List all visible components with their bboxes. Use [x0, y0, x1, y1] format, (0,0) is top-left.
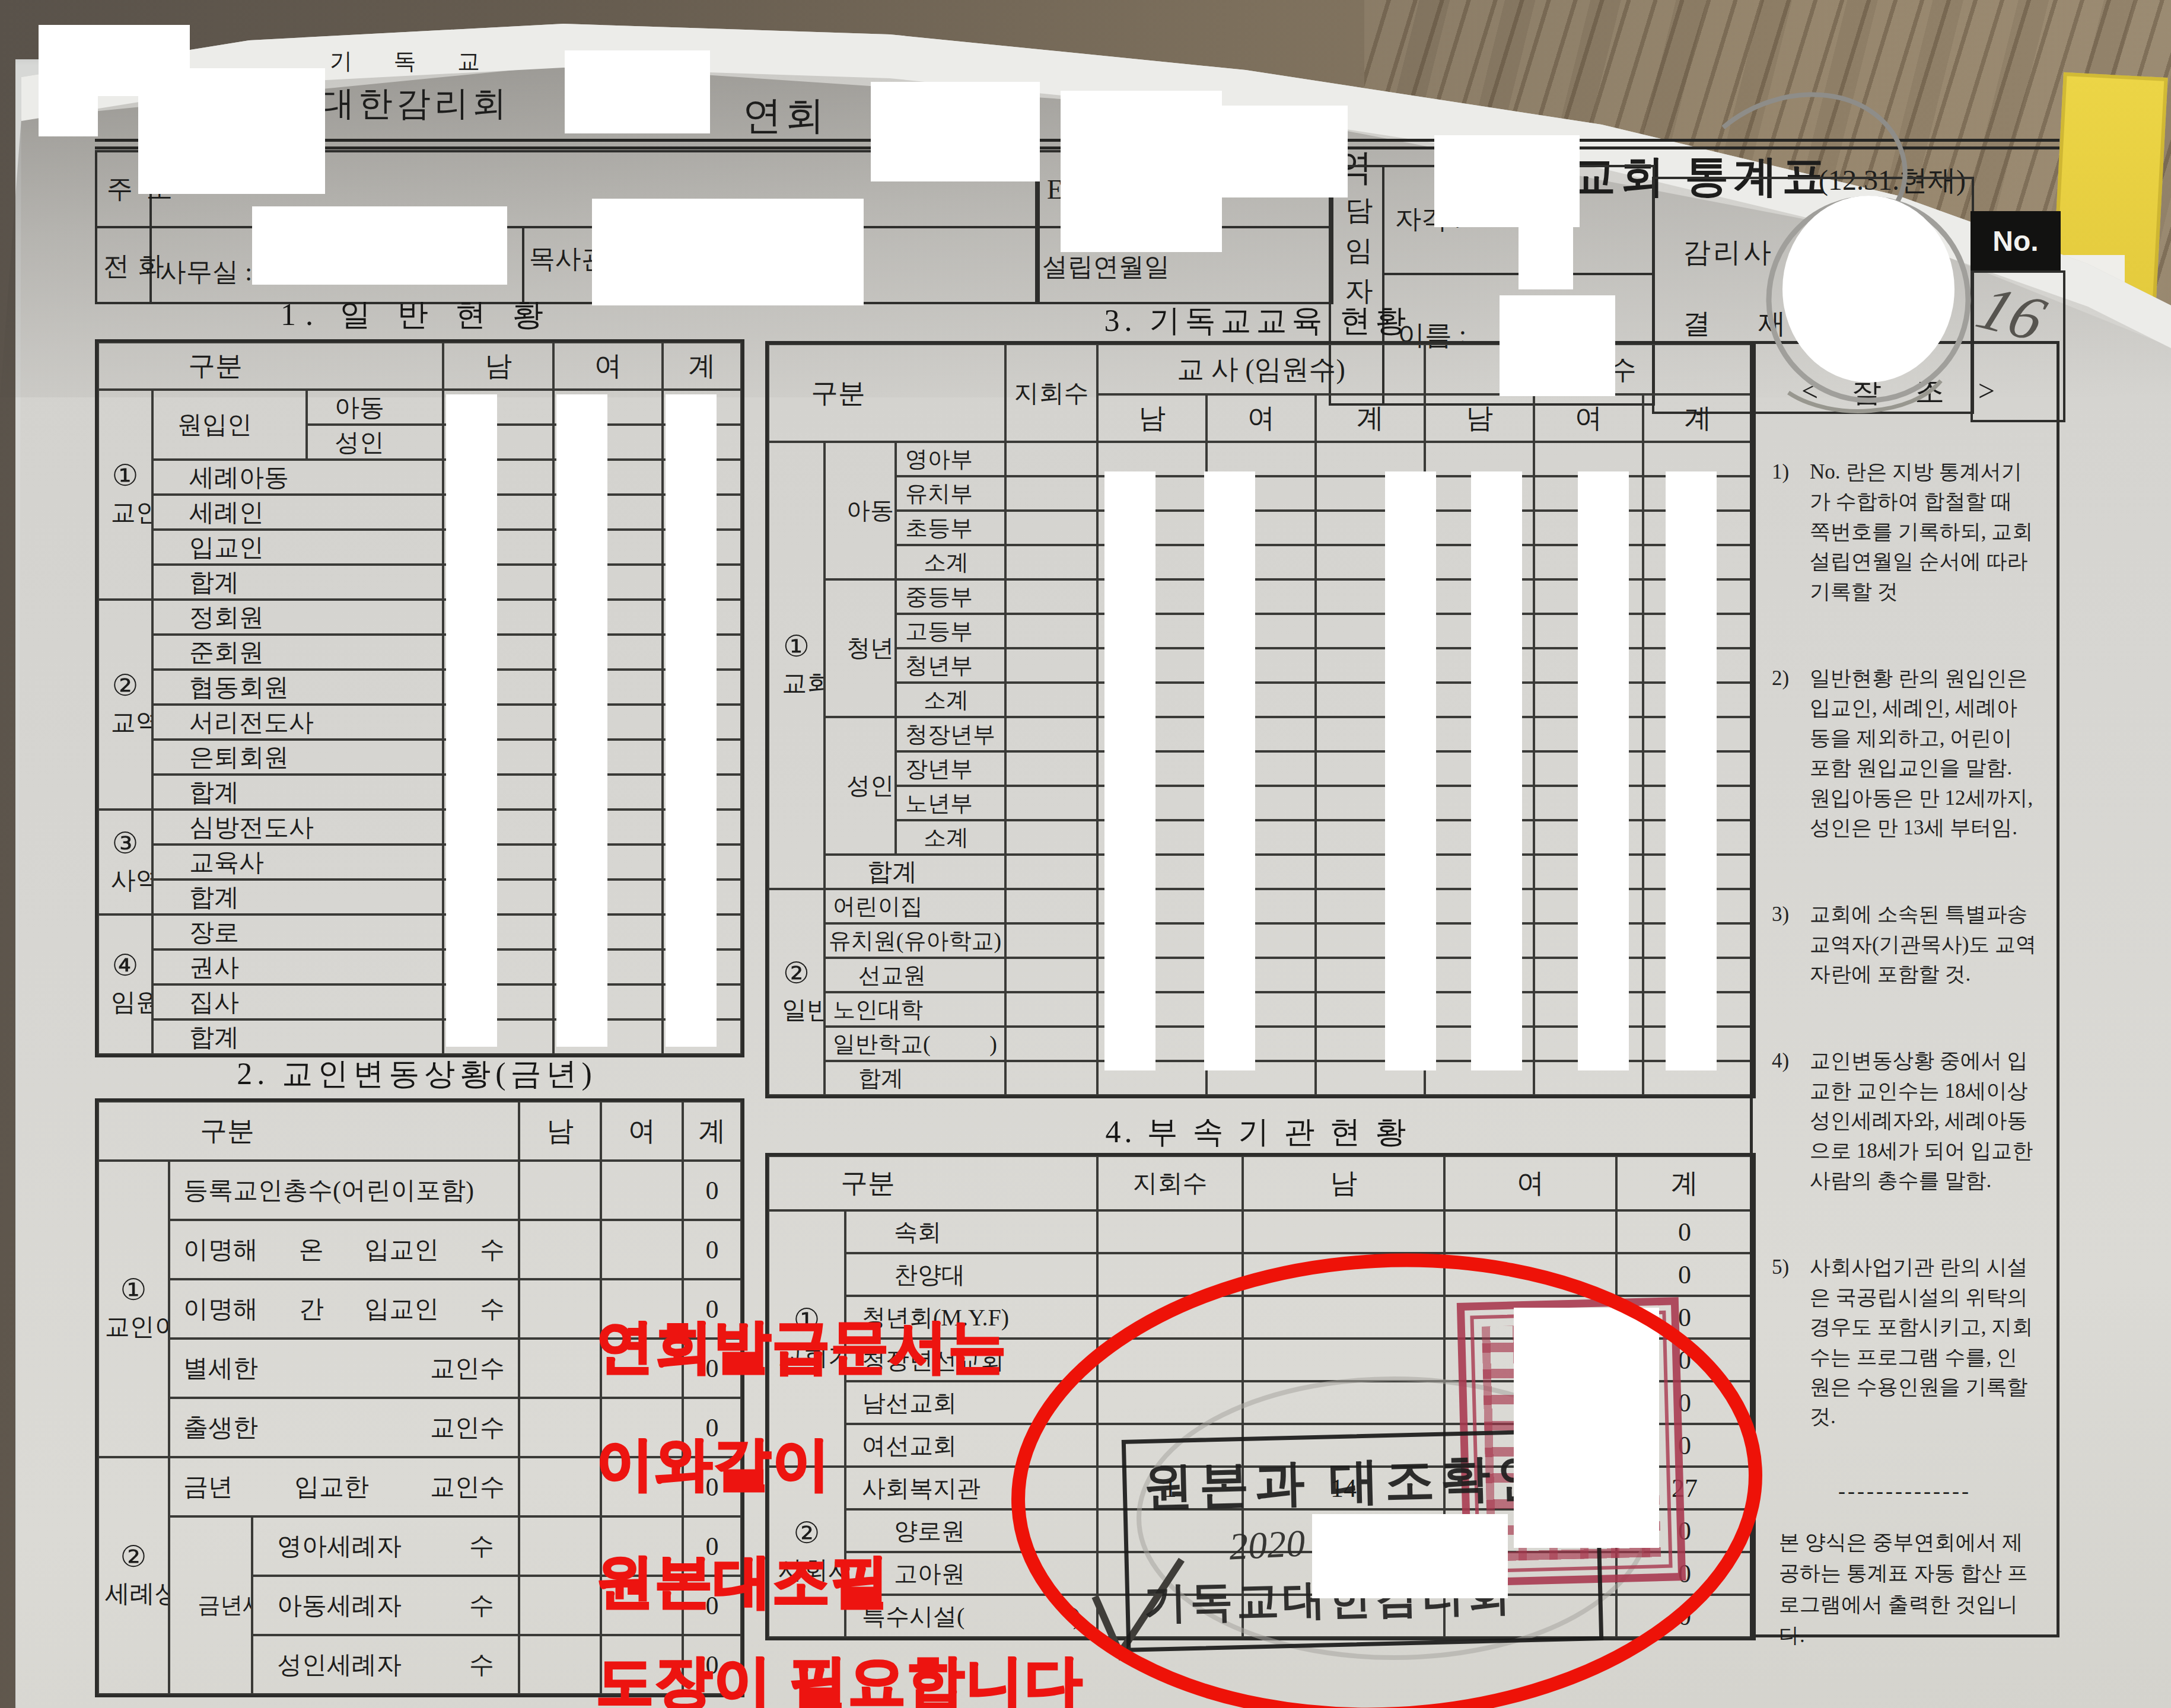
divider: [522, 226, 524, 302]
table-cell: [519, 1279, 601, 1339]
table-label-cell: 속회: [845, 1210, 1097, 1253]
group-number: ①: [783, 630, 810, 663]
red-note-line: 원본대조필: [596, 1543, 890, 1621]
table-label-cell: 일반학교( ): [825, 1027, 1005, 1061]
column-header: 구분: [768, 1156, 1097, 1210]
note-text: No. 란은 지방 통계서기가 수합하여 합철할 때 쪽번호를 기록하되, 교회…: [1810, 457, 2038, 607]
table-cell: 0: [683, 1220, 741, 1279]
office-phone-label: 사무실 :: [160, 254, 252, 289]
no-label-box: No.: [1971, 211, 2061, 270]
group-name: 교역자: [111, 706, 139, 740]
phone-label: 전 화: [103, 248, 165, 283]
redaction-box: [592, 199, 864, 305]
redaction-box: [1061, 91, 1222, 252]
table-label-cell: 이명해 온 입교인 수: [169, 1220, 519, 1279]
table-label: 노인대학: [826, 995, 1004, 1025]
note-number: 4): [1772, 1046, 1810, 1196]
group-name: 일반교육: [782, 993, 810, 1027]
table-label-cell: 출생한 교인수: [169, 1398, 519, 1457]
founded-date-label: 설립연월일: [1042, 250, 1170, 284]
table-label-cell: 청장년부: [896, 717, 1005, 751]
table-label: 유치원(유아학교): [825, 926, 1005, 956]
table-label: 입교인: [154, 531, 442, 564]
table-cell: [1005, 545, 1097, 579]
notes-divider: --------------: [1772, 1478, 2038, 1503]
table-cell: [1243, 1339, 1444, 1381]
table-label: 초등부: [897, 513, 1004, 543]
redaction-box: [565, 50, 710, 133]
table-label-cell: 초등부: [896, 511, 1005, 545]
group-name: 임원: [111, 986, 139, 1019]
table-label-cell: 원입인: [152, 390, 307, 460]
denomination-small-label: 기 독 교: [330, 46, 498, 77]
table-label: 장로: [154, 916, 442, 949]
table-cell: [1005, 442, 1097, 476]
column-header: 계: [663, 342, 741, 390]
table-label: 별세한 교인수: [170, 1352, 518, 1385]
table-label-cell: 합계: [152, 880, 443, 914]
group-name: 세례상황: [105, 1577, 163, 1611]
group-header-cell: ②세례상황: [98, 1457, 169, 1694]
group-header-cell: ①교인이동상황: [98, 1161, 169, 1457]
table-label-cell: 장로: [152, 914, 443, 949]
redaction-box: [871, 82, 1040, 181]
table-label: 선교원: [826, 960, 1004, 990]
column-header: 계: [1616, 1156, 1753, 1210]
subgroup-name: 아동부: [846, 495, 874, 527]
table-label: 이명해 온 입교인 수: [170, 1233, 518, 1266]
table-cell: [519, 1398, 601, 1457]
table-cell: [1005, 614, 1097, 648]
table-label-cell: 영아부: [896, 442, 1005, 476]
table-label: 구분: [99, 348, 442, 384]
table-label: 영아부: [897, 444, 1004, 474]
table-label: 구분: [99, 1113, 518, 1149]
redaction-box: [1471, 471, 1522, 1070]
photo-of-church-statistics-form: 년도 기 독 교 대한감리회 연회 지방 구역 교회 통계표 (12.31.현재…: [0, 0, 2171, 1708]
table-label: 합계: [154, 1021, 442, 1054]
table-label: 금년세례자: [198, 1590, 224, 1620]
redaction-box: [1519, 195, 1573, 289]
table-label: 협동회원: [154, 671, 442, 704]
table-label-cell: 노인대학: [825, 992, 1005, 1027]
table-cell: [1005, 717, 1097, 751]
table-cell: [1005, 855, 1097, 889]
table-label: 등록교인총수(어린이포함): [170, 1174, 518, 1207]
pastor-label: 담임자: [1343, 190, 1375, 311]
table-label-cell: 등록교인총수(어린이포함): [169, 1161, 519, 1220]
table-label: 소계: [897, 823, 1004, 853]
column-header: 여: [601, 1101, 683, 1161]
redaction-oval: [1782, 196, 1954, 383]
table-label-cell: 어린이집: [825, 889, 1005, 923]
table-label: 속회: [846, 1216, 1096, 1248]
table-label: 은퇴회원: [154, 741, 442, 774]
group-header-cell: ③사역자: [98, 810, 152, 914]
redaction-box: [1500, 295, 1615, 396]
note-text: 일반현황 란의 원입인은 입교인, 세례인, 세례아동을 제외하고, 어린이 포…: [1810, 664, 2038, 843]
subgroup-header-cell: 청년부: [825, 579, 896, 717]
table-label: 심방전도사: [154, 811, 442, 844]
redaction-box: [252, 206, 507, 285]
table-label: 소계: [897, 547, 1004, 578]
table-label-cell: 장년부: [896, 751, 1005, 786]
table-label: 출생한 교인수: [170, 1411, 518, 1444]
table-cell: [601, 1161, 683, 1220]
table-label-cell: 서리전도사: [152, 705, 443, 740]
table-label-cell: 별세한 교인수: [169, 1339, 519, 1398]
redaction-box: [138, 68, 325, 194]
table-label: 아동: [308, 391, 442, 424]
table-label-cell: 성인: [307, 425, 443, 460]
table-label: 고등부: [897, 616, 1004, 646]
table-label: 집사: [154, 986, 442, 1019]
note-item: 3)교회에 소속된 특별파송 교역자(기관목사)도 교역자란에 포함할 것.: [1772, 900, 2038, 989]
subgroup-header-cell: 아동부: [825, 442, 896, 579]
group-name: 교인: [111, 496, 139, 530]
table-label: 사회복지관: [846, 1472, 1096, 1505]
table-cell: [1005, 923, 1097, 958]
note-number: 2): [1772, 664, 1810, 843]
table-cell: [1243, 1253, 1444, 1296]
table-cell: [1005, 751, 1097, 786]
table-cell: [601, 1220, 683, 1279]
note-number: 3): [1772, 900, 1810, 989]
divider: [97, 226, 1037, 228]
table-cell: [1005, 786, 1097, 820]
table-label-cell: 합계: [152, 1019, 443, 1054]
table-label-cell: 유치원(유아학교): [825, 923, 1005, 958]
table-cell: [519, 1161, 601, 1220]
table-cell: [1097, 1210, 1243, 1253]
table-cell: [1444, 1210, 1616, 1253]
table-label-cell: 아동세례자 수: [252, 1576, 519, 1635]
note-text: 교인변동상황 중에서 입교한 교인수는 18세이상 성인세례자와, 세례아동으로…: [1810, 1046, 2038, 1196]
column-header: 여: [1444, 1156, 1616, 1210]
table-cell: [1005, 889, 1097, 923]
table-cell: [519, 1220, 601, 1279]
column-header: 남: [443, 342, 553, 390]
note-text: 교회에 소속된 특별파송 교역자(기관목사)도 교역자란에 포함할 것.: [1810, 900, 2038, 989]
table-label: 정회원: [154, 601, 442, 634]
table-label-cell: 사회복지관: [845, 1467, 1097, 1509]
redaction-box: [1514, 1308, 1659, 1548]
table-cell: 0: [1616, 1210, 1753, 1253]
group-number: ③: [112, 827, 139, 860]
table-label-cell: 소계: [896, 683, 1005, 717]
table-cell: [1005, 476, 1097, 511]
table-label-cell: 중등부: [896, 579, 1005, 614]
note-item: 4)교인변동상황 중에서 입교한 교인수는 18세이상 성인세례자와, 세례아동…: [1772, 1046, 2038, 1196]
table-cell: 0: [1616, 1253, 1753, 1296]
column-header: 구분: [98, 1101, 519, 1161]
table-label-cell: 소계: [896, 820, 1005, 855]
group-number: ①: [112, 460, 139, 492]
note-text: 사회사업기관 란의 시설은 국공립시설의 위탁의 경우도 포함시키고, 지회수는…: [1810, 1253, 2038, 1432]
table-cell: [519, 1576, 601, 1635]
notes-list: 1)No. 란은 지방 통계서기가 수합하여 합철할 때 쪽번호를 기록하되, …: [1772, 457, 2038, 1432]
group-header-cell: ②교역자: [98, 600, 152, 810]
table-label-cell: 영아세례자 수: [252, 1516, 519, 1576]
table-label-cell: 청년부: [896, 648, 1005, 683]
redaction-box: [1104, 471, 1155, 1070]
redaction-box: [1385, 471, 1436, 1070]
table-label: 합계: [154, 881, 442, 914]
table-label: 중등부: [897, 582, 1004, 612]
group-name: 교회학교: [782, 667, 810, 700]
table-label: 남선교회: [846, 1387, 1096, 1419]
column-header: 여: [1534, 394, 1643, 442]
column-header: 구분: [768, 344, 1005, 442]
table-label: 세례아동: [154, 461, 442, 494]
column-header: 여: [553, 342, 663, 390]
table-cell: [1005, 1027, 1097, 1061]
column-header: 계: [1316, 394, 1425, 442]
table-cell: [1243, 1296, 1444, 1339]
redaction-box: [666, 394, 717, 1047]
table-cell: [1097, 1253, 1243, 1296]
table-cell: [519, 1457, 601, 1516]
table-label-cell: 아동: [307, 390, 443, 425]
table-label: 양로원: [846, 1515, 1096, 1547]
table-label-cell: 합계: [152, 775, 443, 810]
conference-suffix-label: 연회: [743, 89, 828, 142]
table-label: 합계: [154, 776, 442, 809]
table-cell: [519, 1339, 601, 1398]
red-note-line: 연회발급문서는: [596, 1308, 1007, 1386]
table-cell: 0: [1616, 1595, 1753, 1637]
table-label-cell: 찬양대: [845, 1253, 1097, 1296]
denomination-label: 대한감리회: [320, 81, 510, 127]
note-number: 5): [1772, 1253, 1810, 1432]
table-label: 권사: [154, 951, 442, 984]
section4-title: 4. 부 속 기 관 현 황: [765, 1111, 1750, 1153]
redaction-box: [1666, 471, 1717, 1070]
table-label: 합계: [826, 855, 1004, 888]
table-cell: [1005, 579, 1097, 614]
table-label: 여선교회: [846, 1429, 1096, 1462]
group-header-cell: ②일반교육: [768, 889, 825, 1095]
table-label: 소계: [897, 685, 1004, 715]
table-label-cell: 협동회원: [152, 670, 443, 705]
general-status-table: 구분남여계①교인원입인아동성인세례아동세례인입교인합계②교역자정회원준회원협동회…: [95, 339, 744, 1057]
group-name: 사역자: [111, 863, 139, 897]
column-header: 남: [1243, 1156, 1444, 1210]
column-header: 지회수: [1005, 344, 1097, 442]
table-label: 합계: [154, 566, 442, 599]
reference-notes-panel: < 참 조 > 1)No. 란은 지방 통계서기가 수합하여 합철할 때 쪽번호…: [1750, 341, 2059, 1637]
table-label-cell: 고등부: [896, 614, 1005, 648]
table-cell: [1005, 511, 1097, 545]
table-cell: [519, 1516, 601, 1576]
table-label: 노년부: [897, 788, 1004, 818]
table-label: 금년 입교한 교인수: [170, 1470, 518, 1503]
column-header: 남: [519, 1101, 601, 1161]
table-cell: [1005, 648, 1097, 683]
table-label-cell: 합계: [825, 855, 1005, 889]
table-label: 장년부: [897, 754, 1004, 784]
table-label: 청장년부: [897, 719, 1004, 750]
column-header: 지회수: [1097, 1156, 1243, 1210]
subgroup-name: 성인부: [846, 770, 874, 802]
subgroup-header-cell: 성인부: [825, 717, 896, 855]
table-label-cell: 교육사: [152, 845, 443, 880]
table-label-cell: 선교원: [825, 958, 1005, 992]
table-label-cell: 여선교회: [845, 1424, 1097, 1467]
table-label: 성인세례자 수: [253, 1648, 518, 1681]
redaction-box: [446, 394, 497, 1047]
table-cell: [1243, 1210, 1444, 1253]
table-label-cell: 노년부: [896, 786, 1005, 820]
table-cell: [1243, 1381, 1444, 1424]
table-label-cell: 은퇴회원: [152, 740, 443, 775]
table-label: 세례인: [154, 496, 442, 529]
group-number: ②: [783, 957, 810, 990]
table-cell: [1005, 820, 1097, 855]
table-cell: 0: [683, 1161, 741, 1220]
table-cell: [1005, 992, 1097, 1027]
superintendent-label: 감리사: [1683, 234, 1774, 271]
table-label: 찬양대: [846, 1258, 1096, 1291]
table-label-cell: 성인세례자 수: [252, 1635, 519, 1694]
column-header: 여: [1207, 394, 1316, 442]
table-label-cell: 권사: [152, 949, 443, 984]
redaction-box: [1312, 1514, 1508, 1598]
note-number: 1): [1772, 457, 1810, 607]
column-header: 남: [1097, 394, 1207, 442]
table-label: 합계: [826, 1063, 1004, 1094]
table-label: 구분: [769, 1165, 1096, 1202]
redaction-box: [556, 394, 607, 1047]
group-header-cell: ①교회학교: [768, 442, 825, 889]
table-label-cell: 입교인: [152, 530, 443, 565]
table-label: 일반학교( ): [826, 1029, 1004, 1059]
group-name: 교인이동상황: [105, 1310, 163, 1344]
table-label: 영아세례자 수: [253, 1529, 518, 1563]
table-label-cell: 세례인: [152, 495, 443, 530]
table-cell: [1097, 1339, 1243, 1381]
table-label-cell: 유치부: [896, 476, 1005, 511]
table-label-cell: 합계: [152, 565, 443, 600]
table-label: 서리전도사: [154, 706, 442, 739]
redaction-box: [1204, 471, 1255, 1070]
table-label: 이명해 간 입교인 수: [170, 1292, 518, 1325]
table-label: 준회원: [154, 636, 442, 669]
table-cell: [1097, 1296, 1243, 1339]
column-header: 교 사 (임원수): [1097, 344, 1425, 394]
note-item: 1)No. 란은 지방 통계서기가 수합하여 합철할 때 쪽번호를 기록하되, …: [1772, 457, 2038, 607]
column-header: 남: [1425, 394, 1534, 442]
notes-footer: 본 양식은 중부연회에서 제공하는 통계표 자동 합산 프로그램에서 출력한 것…: [1772, 1527, 2038, 1652]
red-note-line: 이와같이: [596, 1426, 831, 1503]
table-label: 교육사: [154, 846, 442, 879]
table-label: 아동세례자 수: [253, 1589, 518, 1622]
table-cell: [1097, 1381, 1243, 1424]
table-label-cell: 심방전도사: [152, 810, 443, 845]
divider: [1382, 273, 1653, 275]
table-label: 구분: [769, 375, 1004, 412]
table-label-cell: 준회원: [152, 635, 443, 670]
table-label-cell: 금년 입교한 교인수: [169, 1457, 519, 1516]
table-label-cell: 합계: [825, 1061, 1005, 1095]
column-header: 계: [1643, 394, 1753, 442]
redaction-box: [39, 66, 98, 136]
table-label-cell: 금년세례자: [169, 1516, 252, 1694]
table-label: 어린이집: [826, 891, 1004, 922]
table-cell: [519, 1635, 601, 1694]
note-item: 5)사회사업기관 란의 시설은 국공립시설의 위탁의 경우도 포함시키고, 지회…: [1772, 1253, 2038, 1432]
table-cell: [1005, 1061, 1097, 1095]
column-header: 구분: [98, 342, 443, 390]
table-cell: [1444, 1253, 1616, 1296]
table-label: 원입인: [154, 408, 305, 441]
column-header: 계: [683, 1101, 741, 1161]
note-item: 2)일반현황 란의 원입인은 입교인, 세례인, 세례아동을 제외하고, 어린이…: [1772, 664, 2038, 843]
group-number: ①: [120, 1274, 147, 1307]
table-label: 성인: [308, 426, 442, 459]
group-number: ④: [112, 949, 139, 982]
table-cell: [1005, 958, 1097, 992]
group-number: ②: [120, 1541, 147, 1573]
table-label-cell: 남선교회: [845, 1381, 1097, 1424]
table-cell: [1005, 683, 1097, 717]
redaction-box: [1578, 471, 1629, 1070]
group-number: ②: [112, 670, 139, 702]
table-label: 청년부: [897, 651, 1004, 681]
table-label-cell: 세례아동: [152, 460, 443, 495]
subgroup-name: 청년부: [846, 632, 874, 664]
table-label-cell: 집사: [152, 984, 443, 1019]
table-label-cell: 이명해 간 입교인 수: [169, 1279, 519, 1339]
table-label: 유치부: [897, 479, 1004, 509]
table-label-cell: 소계: [896, 545, 1005, 579]
group-header-cell: ④임원: [98, 914, 152, 1054]
section2-title: 2. 교인변동상황(금년): [95, 1053, 738, 1095]
table-label-cell: 정회원: [152, 600, 443, 635]
group-header-cell: ①교인: [98, 390, 152, 600]
red-note-line: 도장이 필요합니다: [596, 1644, 1083, 1708]
